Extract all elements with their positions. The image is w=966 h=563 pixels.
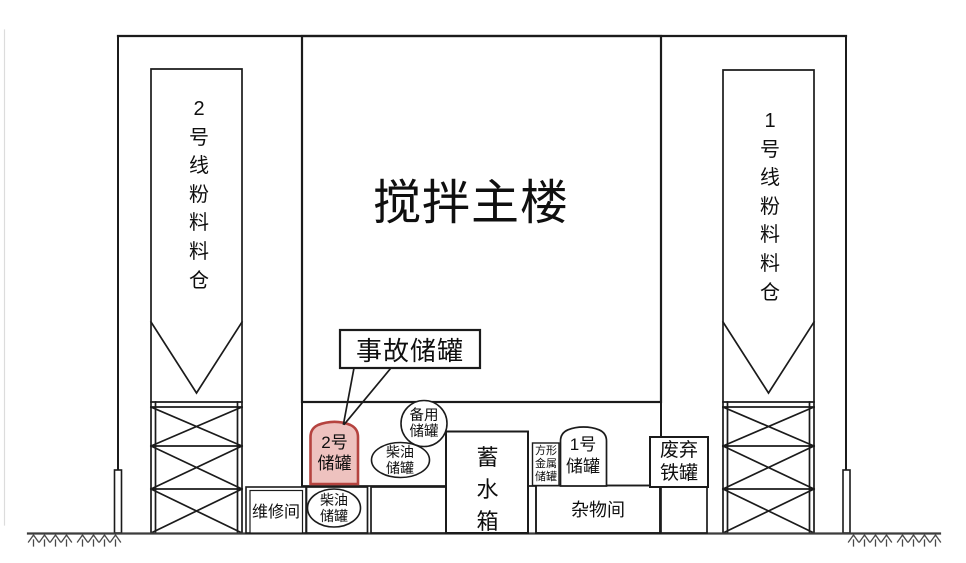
callout-label: 事故储罐	[340, 330, 480, 368]
left-truss-braces	[151, 407, 242, 533]
right-silo-label: 1号线粉料料仓	[758, 107, 783, 307]
backup-tank-label: 备用 储罐	[399, 408, 449, 441]
left-truss-chords	[151, 402, 242, 489]
scrap-iron-tank-label: 废弃 铁罐	[654, 439, 704, 485]
left-silo-hopper	[151, 322, 242, 393]
hatch-group-right-2	[898, 535, 941, 546]
right-truss-chords	[723, 402, 814, 489]
main-building-label: 搅拌主楼	[290, 167, 652, 229]
empty-room-left-box	[371, 487, 446, 533]
structure-lines	[5, 30, 941, 546]
hatch-group-left-2	[78, 535, 121, 546]
maintenance-room-label: 维修间	[246, 487, 306, 533]
hatch-group-left-1	[29, 535, 72, 546]
water-tank-label: 蓄水箱	[474, 442, 501, 538]
right-footing-post	[843, 470, 850, 533]
callout-leader-lines	[344, 368, 392, 424]
empty-room-right-box	[661, 487, 707, 533]
hatch-group-right-1	[849, 535, 892, 546]
square-metal-tank-label: 方形 金属 储罐	[533, 445, 559, 484]
right-truss-braces	[723, 407, 814, 533]
tank1-label: 1号 储罐	[558, 434, 608, 477]
diesel-upper-label: 柴油 储罐	[375, 444, 425, 476]
sundry-room-label: 杂物间	[536, 485, 660, 533]
left-silo-label: 2号线粉料料仓	[187, 95, 212, 295]
tank2-label: 2号 储罐	[310, 432, 359, 474]
right-silo-hopper	[723, 322, 814, 393]
left-footing-post	[115, 470, 122, 533]
diesel-lower-label: 柴油 储罐	[309, 492, 359, 524]
elevation-diagram: 2号线粉料料仓 1号线粉料料仓 搅拌主楼 事故储罐 2号 储罐 柴油 储罐 备用…	[0, 0, 966, 563]
